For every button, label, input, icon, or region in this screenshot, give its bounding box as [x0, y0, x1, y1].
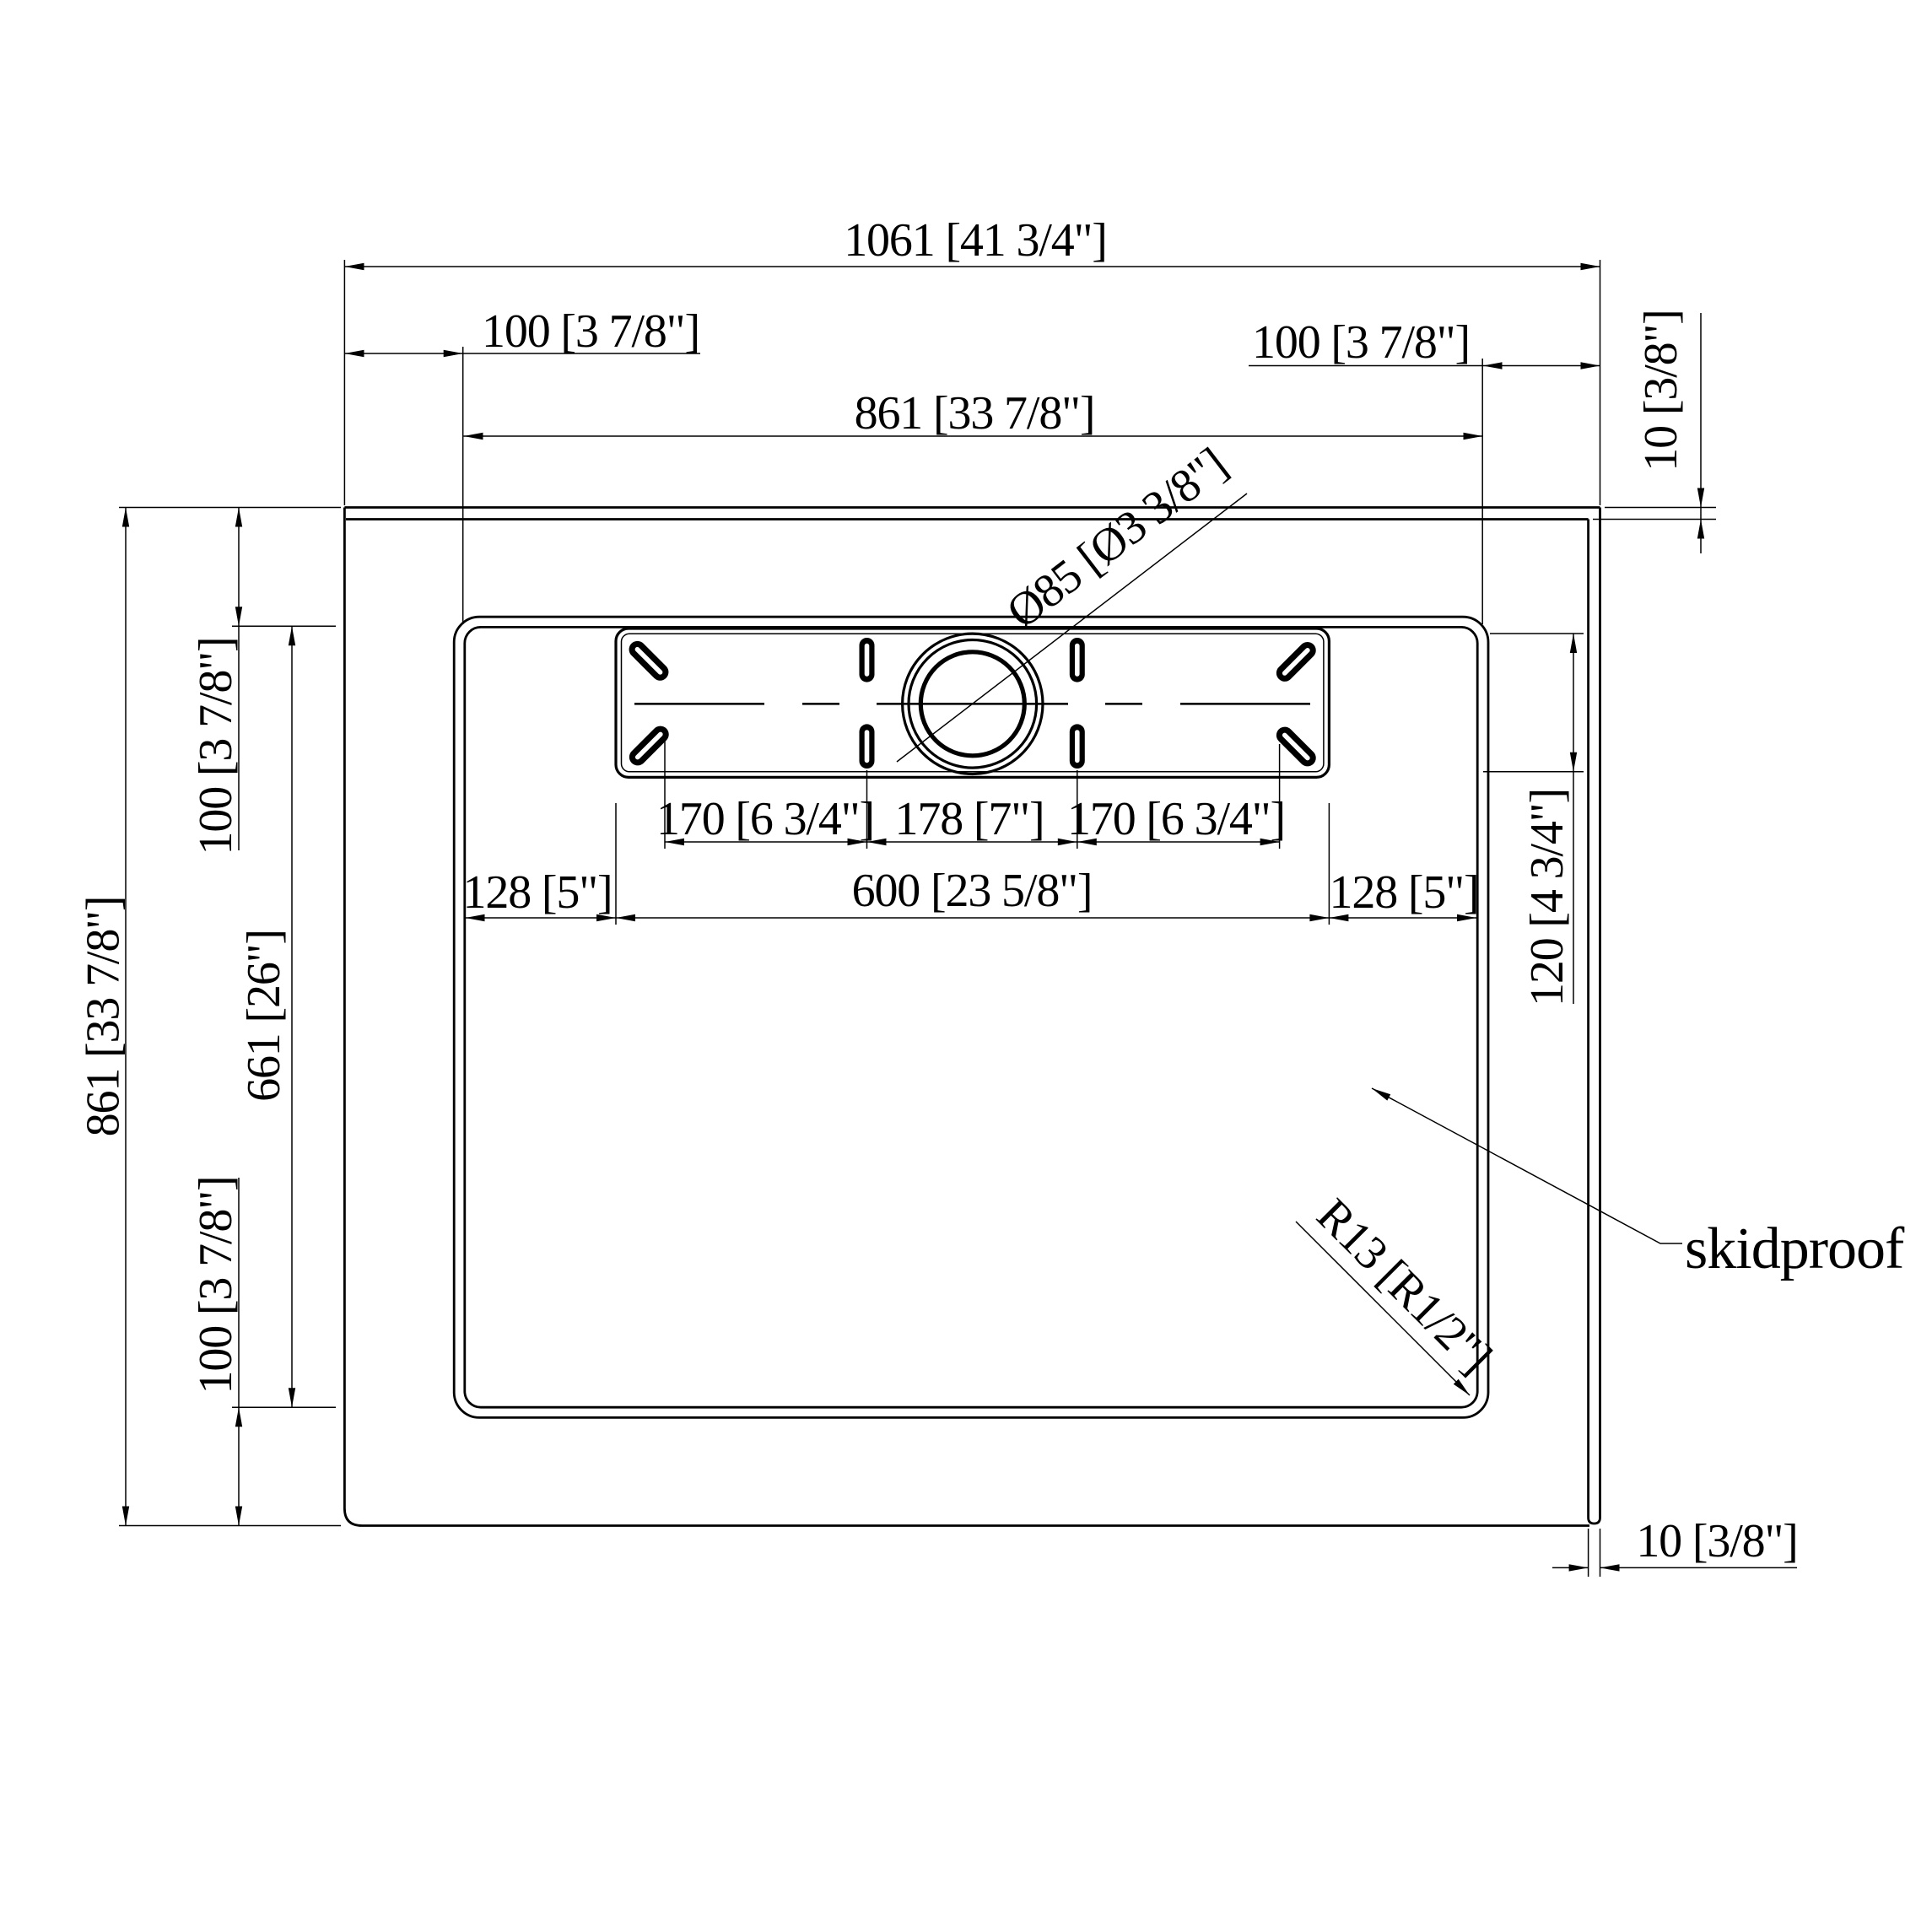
svg-text:100 [3 7/8"]: 100 [3 7/8"]: [190, 1177, 242, 1394]
svg-text:170 [6 3/4"]: 170 [6 3/4"]: [656, 793, 874, 845]
svg-text:120 [4 3/4"]: 120 [4 3/4"]: [1521, 789, 1573, 1006]
svg-text:skidproof: skidproof: [1685, 1216, 1905, 1281]
svg-text:100 [3 7/8"]: 100 [3 7/8"]: [190, 638, 242, 855]
svg-text:128 [5"]: 128 [5"]: [463, 866, 613, 919]
svg-text:128 [5"]: 128 [5"]: [1330, 866, 1479, 919]
svg-text:10 [3/8"]: 10 [3/8"]: [1636, 1515, 1797, 1567]
svg-text:10 [3/8"]: 10 [3/8"]: [1635, 310, 1687, 471]
svg-text:100 [3 7/8"]: 100 [3 7/8"]: [1252, 316, 1470, 369]
svg-text:861 [33 7/8"]: 861 [33 7/8"]: [78, 897, 130, 1137]
svg-text:661 [26"]: 661 [26"]: [238, 930, 290, 1102]
svg-text:600 [23 5/8"]: 600 [23 5/8"]: [852, 865, 1093, 917]
svg-text:178 [7"]: 178 [7"]: [895, 793, 1044, 845]
svg-text:170 [6 3/4"]: 170 [6 3/4"]: [1067, 793, 1285, 845]
svg-text:100 [3 7/8"]: 100 [3 7/8"]: [482, 305, 699, 358]
svg-text:861 [33 7/8"]: 861 [33 7/8"]: [855, 387, 1095, 440]
svg-text:1061 [41 3/4"]: 1061 [41 3/4"]: [844, 214, 1107, 267]
